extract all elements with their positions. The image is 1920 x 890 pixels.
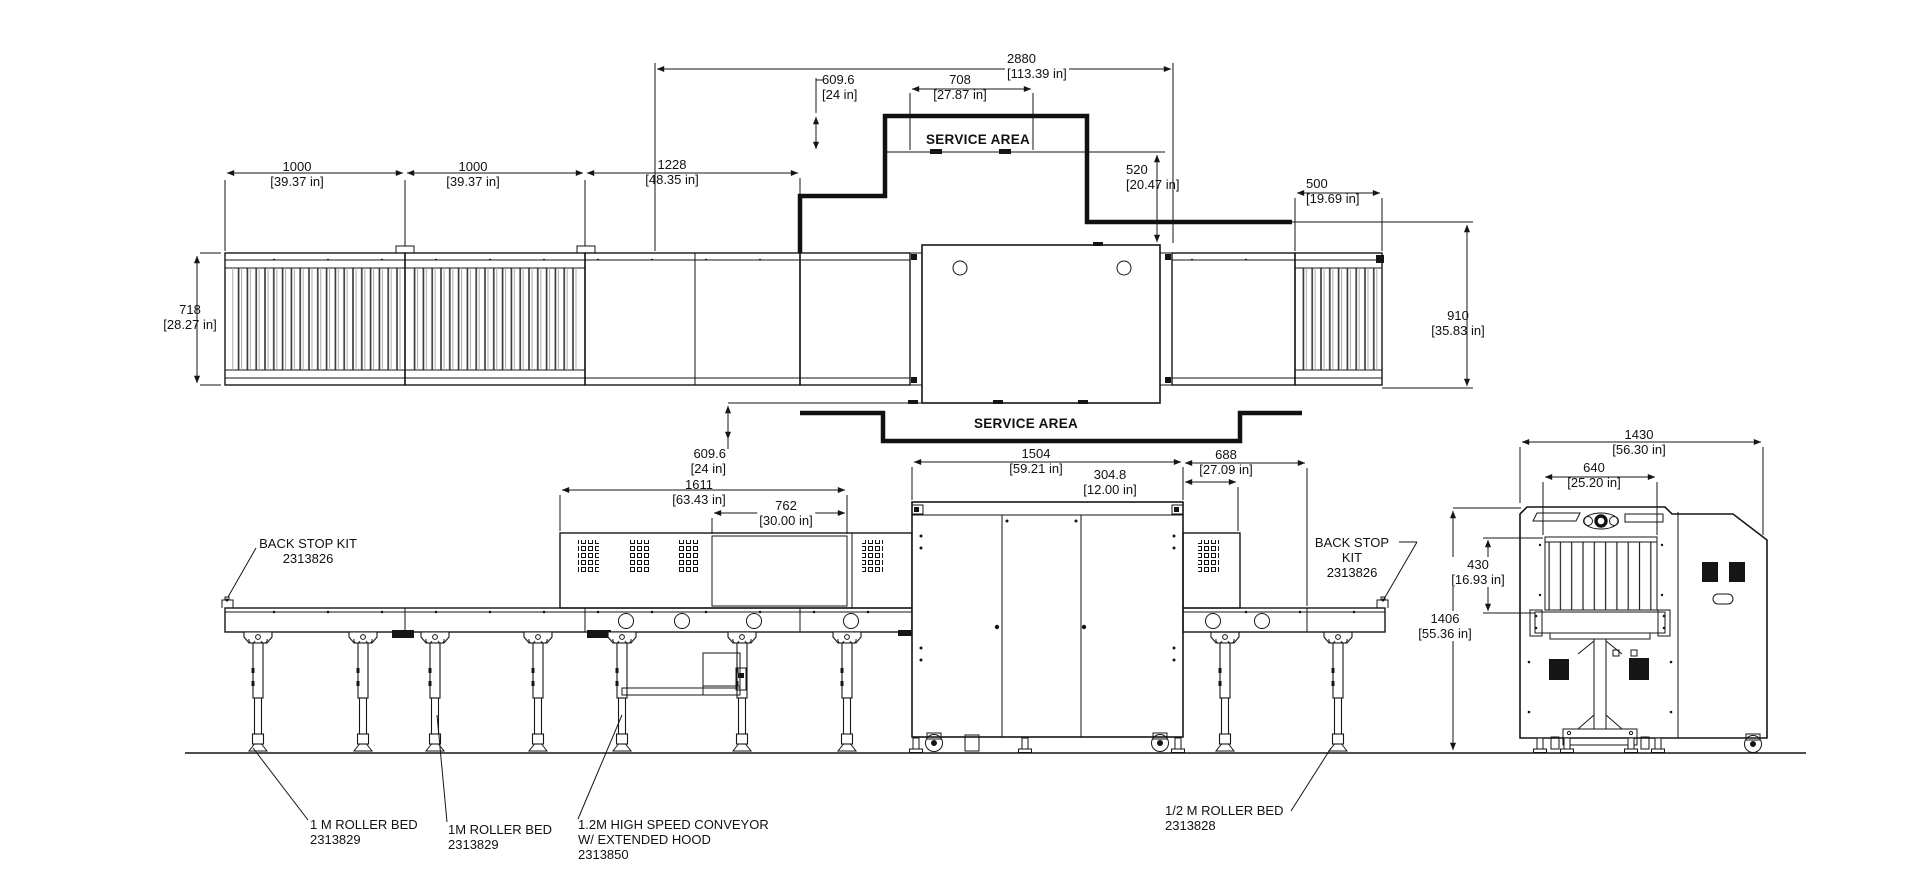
- leader-lines: [228, 542, 1417, 822]
- side-legs: [244, 632, 1352, 753]
- plan-exit-section: [1172, 253, 1295, 385]
- label-roller-bed-1: 1 M ROLLER BED2313829: [310, 817, 418, 847]
- plan-roller-bed-2: [396, 246, 595, 385]
- plan-scanner: [908, 242, 1172, 404]
- end-view: [1520, 507, 1767, 753]
- service-area-bottom-label: SERVICE AREA: [974, 416, 1078, 431]
- side-scanner: [910, 502, 1185, 753]
- drawing-sheet: 1000[39.37 in] 1000[39.37 in] 1228[48.35…: [0, 0, 1920, 890]
- dim-708: 708[27.87 in]: [933, 72, 987, 102]
- side-view: [222, 502, 1417, 822]
- label-back-stop-kit-right: BACK STOPKIT2313826: [1315, 535, 1389, 580]
- dim-1000-b: 1000[39.37 in]: [446, 159, 500, 189]
- plan-roller-bed-1: [225, 253, 405, 385]
- dim-762: 762[30.00 in]: [757, 498, 815, 528]
- label-high-speed-conveyor: 1.2M HIGH SPEED CONVEYORW/ EXTENDED HOOD…: [578, 817, 769, 862]
- dim-304: 304.8[12.00 in]: [1083, 467, 1137, 497]
- end-tunnel: [1539, 537, 1663, 610]
- dim-1228: 1228[48.35 in]: [645, 157, 699, 187]
- dim-1504: 1504[59.21 in]: [1009, 446, 1063, 476]
- label-roller-bed-2: 1M ROLLER BED2313829: [448, 822, 552, 852]
- plan-half-roller-bed: [1295, 253, 1384, 385]
- back-stop-bracket-right: [1377, 597, 1388, 608]
- dim-688: 688[27.09 in]: [1199, 447, 1253, 477]
- plan-high-speed-conveyor: [585, 253, 800, 385]
- service-area-top-outline: [800, 116, 1292, 253]
- dim-1430: 1430[56.30 in]: [1612, 427, 1666, 457]
- dim-910: 910[35.83 in]: [1431, 308, 1485, 338]
- dim-609-bottom: 609.6[24 in]: [666, 446, 726, 476]
- side-extended-hood: [560, 533, 912, 608]
- plan-view: [225, 116, 1473, 441]
- dim-718: 718[28.27 in]: [163, 302, 217, 332]
- label-back-stop-kit-left: BACK STOP KIT2313826: [259, 536, 357, 566]
- dim-1000-a: 1000[39.37 in]: [270, 159, 324, 189]
- dim-430: 430[16.93 in]: [1449, 557, 1507, 587]
- dim-500: 500[19.69 in]: [1306, 176, 1360, 206]
- dim-609-top: 609.6[24 in]: [822, 72, 857, 102]
- dim-1406: 1406[55.36 in]: [1416, 611, 1474, 641]
- plan-entry-section: [800, 253, 910, 385]
- label-half-roller-bed: 1/2 M ROLLER BED2313828: [1165, 803, 1284, 833]
- dim-2880: 2880[113.39 in]: [1005, 51, 1069, 81]
- dim-640: 640[25.20 in]: [1567, 460, 1621, 490]
- service-area-top-label: SERVICE AREA: [926, 132, 1030, 147]
- side-bed-left: [225, 608, 914, 638]
- dim-1611: 1611[63.43 in]: [672, 477, 726, 507]
- back-stop-bracket-left: [222, 597, 233, 608]
- side-control-box: [622, 653, 746, 695]
- dim-520: 520[20.47 in]: [1126, 162, 1180, 192]
